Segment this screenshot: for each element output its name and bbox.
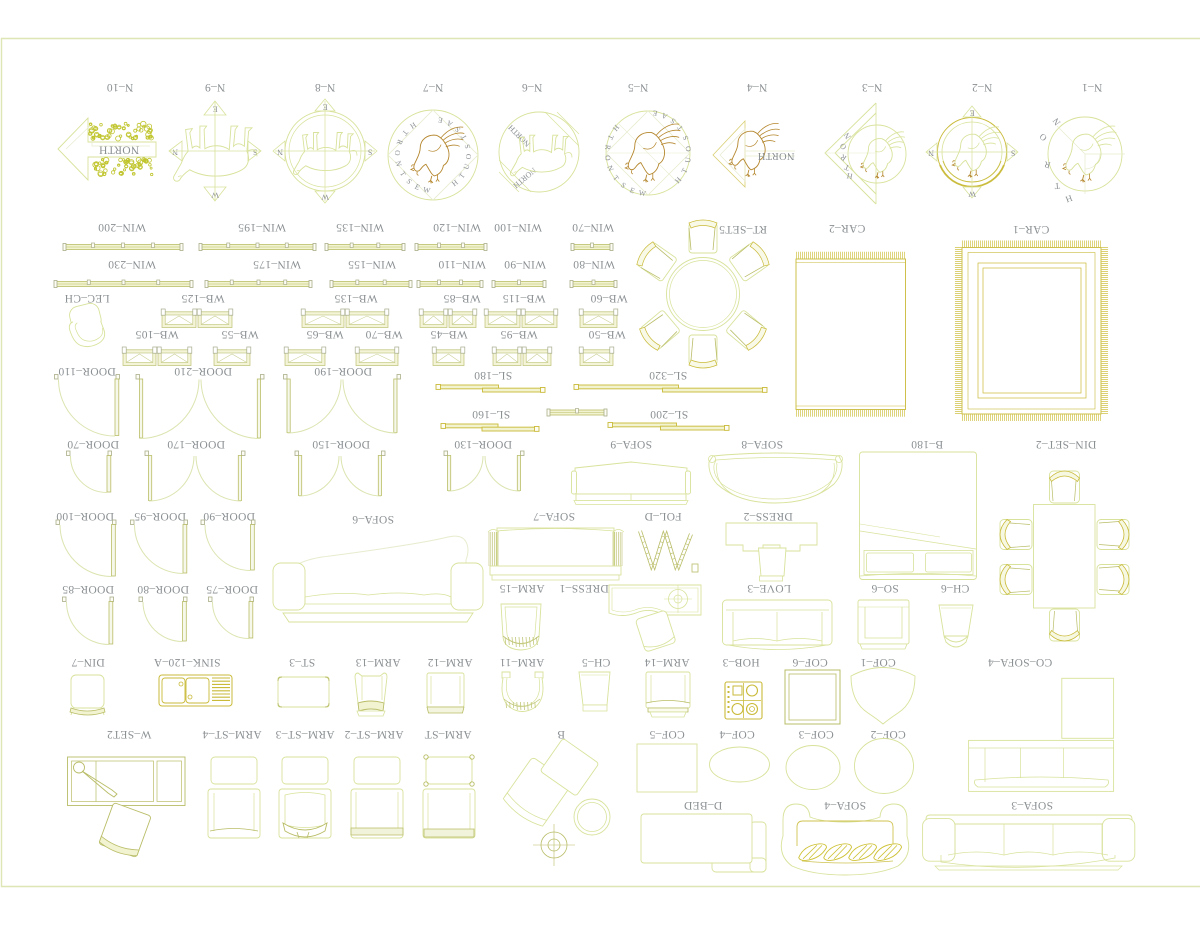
svg-text:WIN–155: WIN–155 xyxy=(348,258,396,270)
svg-text:WIN–175: WIN–175 xyxy=(253,258,301,270)
svg-text:E: E xyxy=(322,103,327,112)
svg-text:SL–180: SL–180 xyxy=(474,369,512,381)
svg-text:WIN–80: WIN–80 xyxy=(573,258,615,270)
svg-text:SL–320: SL–320 xyxy=(649,369,687,381)
svg-text:DRESS–1: DRESS–1 xyxy=(559,582,608,594)
svg-text:N–10: N–10 xyxy=(107,81,134,93)
svg-text:ST–3: ST–3 xyxy=(289,656,315,668)
svg-text:N–3: N–3 xyxy=(862,81,883,93)
svg-text:ARM–12: ARM–12 xyxy=(427,656,472,668)
svg-text:DOOR–85: DOOR–85 xyxy=(62,583,114,595)
svg-text:DOOR–150: DOOR–150 xyxy=(312,438,370,450)
svg-text:D–BED: D–BED xyxy=(684,799,723,811)
svg-text:W–SET2: W–SET2 xyxy=(107,728,152,740)
svg-text:COF–5: COF–5 xyxy=(649,728,684,740)
svg-text:N: N xyxy=(277,148,283,157)
svg-text:SOFA–6: SOFA–6 xyxy=(352,513,394,525)
svg-text:WIN–90: WIN–90 xyxy=(504,258,546,270)
svg-text:DOOR–170: DOOR–170 xyxy=(167,438,225,450)
svg-text:WIN–70: WIN–70 xyxy=(572,221,614,233)
svg-text:LEC–CH: LEC–CH xyxy=(64,292,109,304)
svg-text:SOFA–8: SOFA–8 xyxy=(741,438,783,450)
svg-text:ARM–11: ARM–11 xyxy=(500,656,545,668)
svg-text:WB–50: WB–50 xyxy=(588,328,625,340)
svg-text:LOVE–3: LOVE–3 xyxy=(747,582,791,594)
svg-text:HOB–3: HOB–3 xyxy=(722,656,759,668)
svg-text:DOOR–80: DOOR–80 xyxy=(137,583,189,595)
svg-text:ARM–ST–4: ARM–ST–4 xyxy=(202,728,261,740)
svg-text:DOOR–210: DOOR–210 xyxy=(174,365,232,377)
svg-text:N: N xyxy=(928,149,934,158)
svg-text:COF–2: COF–2 xyxy=(870,728,905,740)
svg-text:DOOR–110: DOOR–110 xyxy=(58,365,116,377)
svg-text:DOOR–75: DOOR–75 xyxy=(206,583,258,595)
svg-text:N–4: N–4 xyxy=(747,81,768,93)
svg-text:N–7: N–7 xyxy=(423,81,444,93)
svg-text:N–6: N–6 xyxy=(522,81,543,93)
svg-text:SL–200: SL–200 xyxy=(650,408,688,420)
svg-text:CH–5: CH–5 xyxy=(582,656,611,668)
svg-text:WB–135: WB–135 xyxy=(334,292,377,304)
svg-text:WIN–110: WIN–110 xyxy=(438,258,486,270)
svg-text:E: E xyxy=(969,109,974,118)
svg-text:SOFA–9: SOFA–9 xyxy=(610,438,652,450)
svg-text:RT–SET5: RT–SET5 xyxy=(719,223,767,235)
svg-text:FOL–D: FOL–D xyxy=(644,510,681,522)
svg-text:DIN–SET–2: DIN–SET–2 xyxy=(1036,438,1097,450)
svg-text:ARM–ST–2: ARM–ST–2 xyxy=(344,728,403,740)
svg-text:COF–3: COF–3 xyxy=(798,728,833,740)
svg-text:WB–85: WB–85 xyxy=(443,292,480,304)
svg-text:DOOR–70: DOOR–70 xyxy=(67,438,119,450)
svg-text:ARM–14: ARM–14 xyxy=(644,656,689,668)
svg-text:B: B xyxy=(557,728,565,740)
svg-text:NORTH: NORTH xyxy=(99,144,139,156)
svg-text:WB–125: WB–125 xyxy=(181,292,224,304)
svg-text:CO–SOFA–4: CO–SOFA–4 xyxy=(988,656,1052,668)
svg-text:WB–70: WB–70 xyxy=(365,328,402,340)
svg-text:WIN–120: WIN–120 xyxy=(433,221,481,233)
svg-text:SOFA–7: SOFA–7 xyxy=(533,510,575,522)
svg-text:N–1: N–1 xyxy=(1082,81,1103,93)
svg-text:N–2: N–2 xyxy=(972,81,993,93)
svg-text:SINK–120–A: SINK–120–A xyxy=(153,656,220,668)
svg-text:NORTH: NORTH xyxy=(757,150,794,161)
svg-text:DRESS–2: DRESS–2 xyxy=(743,510,792,522)
svg-text:DOOR–190: DOOR–190 xyxy=(314,365,372,377)
svg-text:WB–115: WB–115 xyxy=(503,292,546,304)
svg-text:SOFA–4: SOFA–4 xyxy=(824,799,866,811)
svg-text:N–8: N–8 xyxy=(315,81,336,93)
svg-text:WB–55: WB–55 xyxy=(221,328,258,340)
svg-text:ARM–ST: ARM–ST xyxy=(424,728,471,740)
svg-text:W: W xyxy=(321,193,329,202)
svg-text:WIN–195: WIN–195 xyxy=(238,221,286,233)
svg-text:ARM–ST–3: ARM–ST–3 xyxy=(275,728,334,740)
svg-text:WIN–135: WIN–135 xyxy=(336,221,384,233)
svg-text:DIN–7: DIN–7 xyxy=(71,656,104,668)
svg-text:N–5: N–5 xyxy=(628,81,649,93)
svg-text:COF–1: COF–1 xyxy=(860,656,895,668)
svg-text:WB–45: WB–45 xyxy=(430,328,467,340)
svg-text:DOOR–100: DOOR–100 xyxy=(56,510,114,522)
svg-text:N: N xyxy=(172,148,178,157)
svg-text:COF–4: COF–4 xyxy=(719,728,754,740)
svg-text:DOOR–95: DOOR–95 xyxy=(134,510,186,522)
svg-text:WB–60: WB–60 xyxy=(590,292,627,304)
svg-text:WIN–200: WIN–200 xyxy=(98,221,146,233)
svg-text:WB–65: WB–65 xyxy=(306,328,343,340)
svg-text:S: S xyxy=(368,148,373,157)
svg-text:WIN–230: WIN–230 xyxy=(108,258,156,270)
svg-text:B–180: B–180 xyxy=(911,438,943,450)
svg-text:WIN–100: WIN–100 xyxy=(494,221,542,233)
svg-text:WB–95: WB–95 xyxy=(500,328,537,340)
svg-text:CH–6: CH–6 xyxy=(941,582,970,594)
svg-text:O: O xyxy=(464,153,473,159)
svg-text:S: S xyxy=(1011,149,1016,158)
svg-text:CAR–2: CAR–2 xyxy=(829,222,866,234)
svg-text:SO–6: SO–6 xyxy=(871,582,898,594)
svg-text:ARM–15: ARM–15 xyxy=(499,582,544,594)
svg-text:WB–105: WB–105 xyxy=(135,328,178,340)
svg-text:DOOR–130: DOOR–130 xyxy=(454,438,512,450)
svg-text:COF–6: COF–6 xyxy=(792,656,827,668)
svg-text:ARM–13: ARM–13 xyxy=(355,656,400,668)
svg-text:DOOR–90: DOOR–90 xyxy=(203,510,255,522)
svg-text:CAR–1: CAR–1 xyxy=(1013,223,1050,235)
svg-text:W: W xyxy=(968,190,976,199)
svg-text:SL–160: SL–160 xyxy=(472,408,510,420)
svg-text:N–9: N–9 xyxy=(205,81,226,93)
svg-text:SOFA–3: SOFA–3 xyxy=(1011,799,1053,811)
